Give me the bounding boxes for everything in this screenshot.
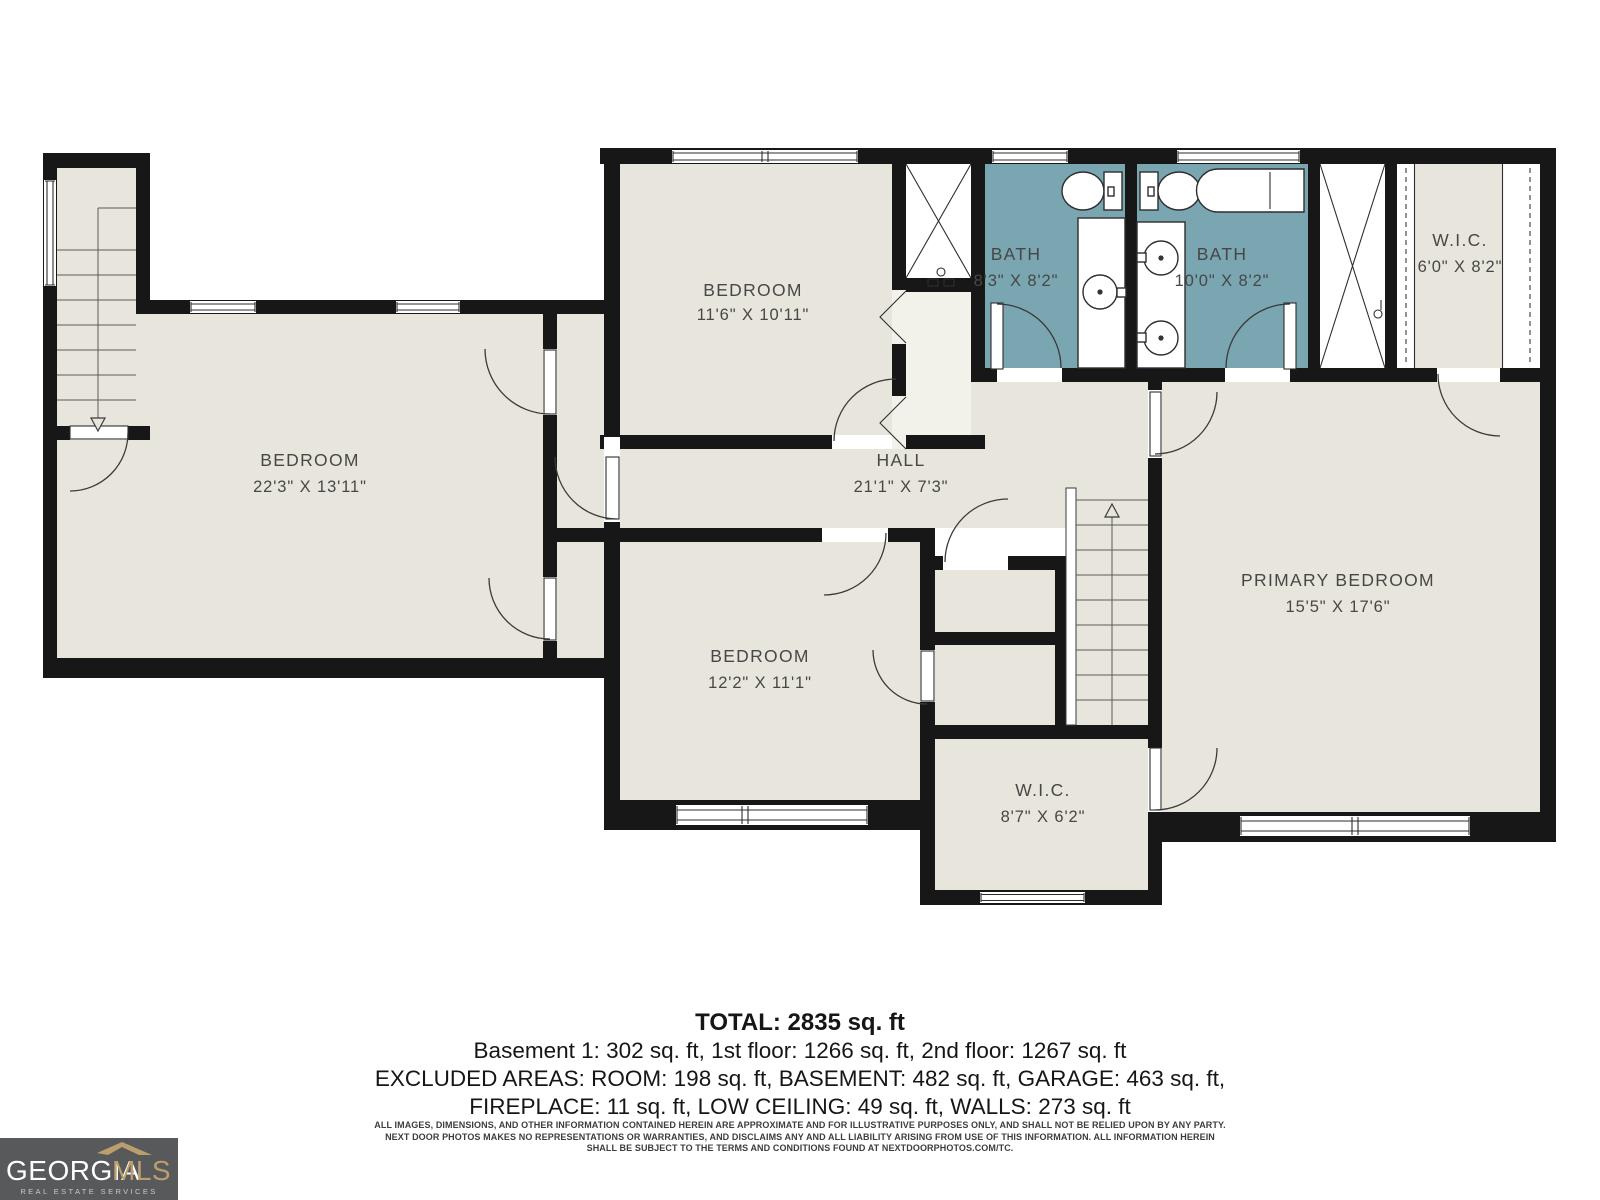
bedroom-bottom-fill (620, 542, 920, 800)
logo-tagline: REAL ESTATE SERVICES (20, 1187, 157, 1196)
window (992, 150, 1068, 163)
closet1-fill (935, 570, 1055, 632)
room-dims-bath-2: 10'0" X 8'2" (1175, 272, 1270, 290)
floorplan-page: BEDROOM 11'6" X 10'11" BATH 8'3" X 8'2" … (0, 0, 1600, 1200)
disclaimer-line: SHALL BE SUBJECT TO THE TERMS AND CONDIT… (0, 1143, 1600, 1155)
window (1240, 816, 1470, 836)
room-label-wic-bottom: W.I.C. (1015, 780, 1070, 800)
room-dims-bedroom-bottom: 12'2" X 11'1" (708, 674, 812, 692)
room-label-bath-2: BATH (1197, 244, 1248, 264)
area-summary: TOTAL: 2835 sq. ft Basement 1: 302 sq. f… (0, 1008, 1600, 1121)
disclaimer-line: ALL IMAGES, DIMENSIONS, AND OTHER INFORM… (0, 1120, 1600, 1132)
window (980, 892, 1085, 903)
closet2-fill (935, 645, 1055, 725)
excluded-areas2: FIREPLACE: 11 sq. ft, LOW CEILING: 49 sq… (0, 1093, 1600, 1121)
window (44, 180, 56, 286)
room-dims-bath-1: 8'3" X 8'2" (974, 272, 1059, 290)
disclaimer-line: NEXT DOOR PHOTOS MAKES NO REPRESENTATION… (0, 1132, 1600, 1144)
room-label-bath-1: BATH (991, 244, 1042, 264)
toilet (1062, 172, 1104, 210)
room-label-bedroom-left: BEDROOM (260, 450, 360, 470)
excluded-areas: EXCLUDED AREAS: ROOM: 198 sq. ft, BASEME… (0, 1065, 1600, 1093)
toilet (1158, 172, 1200, 210)
logo-mls: MLS (112, 1155, 171, 1186)
georgia-mls-logo: GEORGIA MLS REAL ESTATE SERVICES (0, 1138, 178, 1200)
room-label-bedroom-bottom: BEDROOM (710, 646, 810, 666)
stairs-center-fill (1067, 382, 1148, 725)
window (1177, 150, 1300, 163)
bifold-closet-fill (906, 292, 971, 435)
room-label-wic-top: W.I.C. (1432, 230, 1487, 250)
window (396, 301, 460, 313)
wic-top-left-strip (1397, 164, 1415, 368)
room-label-primary: PRIMARY BEDROOM (1241, 570, 1435, 590)
room-dims-primary: 15'5" X 17'6" (1286, 598, 1391, 616)
bathtub (1197, 169, 1305, 212)
room-dims-bedroom-top: 11'6" X 10'11" (697, 306, 810, 324)
total-area: TOTAL: 2835 sq. ft (0, 1008, 1600, 1037)
disclaimer: ALL IMAGES, DIMENSIONS, AND OTHER INFORM… (0, 1120, 1600, 1155)
floor-areas: Basement 1: 302 sq. ft, 1st floor: 1266 … (0, 1037, 1600, 1065)
window (190, 301, 256, 313)
room-dims-wic-top: 6'0" X 8'2" (1418, 258, 1503, 276)
room-dims-bedroom-left: 22'3" X 13'11" (253, 478, 367, 496)
room-label-bedroom-top: BEDROOM (703, 280, 803, 300)
window (676, 805, 868, 825)
primary-bedroom-fill (1162, 382, 1540, 812)
stair-rail (1066, 488, 1076, 725)
window (672, 150, 858, 163)
room-label-hall: HALL (877, 450, 926, 470)
wic-top-right-strip (1502, 164, 1540, 368)
room-dims-hall: 21'1" X 7'3" (854, 478, 949, 496)
room-dims-wic-bottom: 8'7" X 6'2" (1001, 808, 1086, 826)
